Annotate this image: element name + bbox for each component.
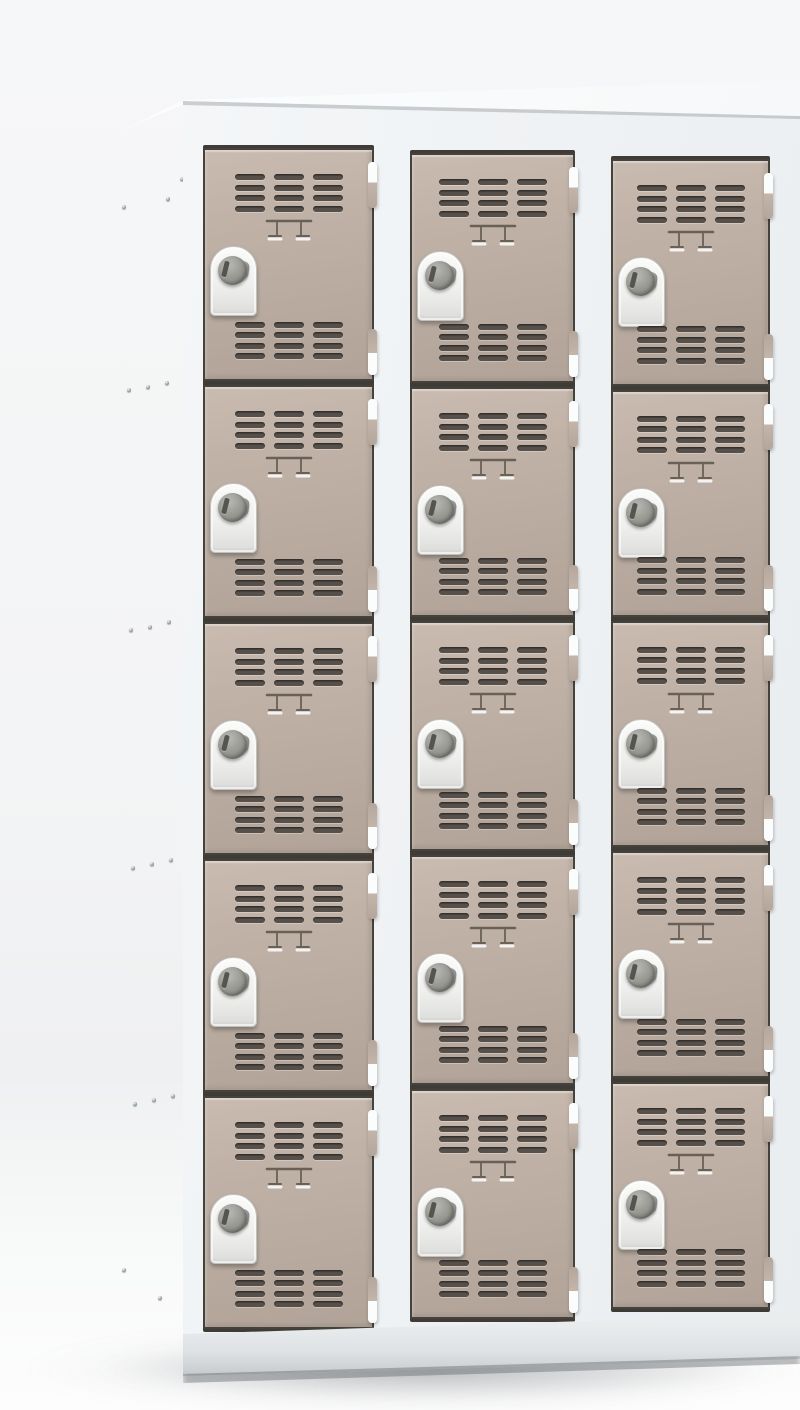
vent-slat [676,1040,706,1046]
vent-slat [439,1136,469,1142]
vent-slat [235,590,265,596]
vent-slat [715,877,745,883]
vent-slat [637,1040,667,1046]
vent-slat [637,337,667,343]
vent-slat [637,1050,667,1056]
vent-slat-group [637,185,667,223]
vent-slat [439,413,469,419]
vent-slat [274,1143,304,1149]
vent-slat [439,813,469,819]
vent-slat [676,1019,706,1025]
vent-slat [313,827,343,833]
vent-slat [517,1136,547,1142]
door-bottom-vent [439,558,547,596]
vent-slat [517,1270,547,1276]
vent-slat [478,334,508,340]
vent-slat [715,1249,745,1255]
vent-slat-group [715,1019,745,1057]
vent-slat [313,1133,343,1139]
door-top-vent [637,185,745,223]
vent-slat [274,343,304,349]
vent-slat [313,659,343,665]
vent-slat [235,1043,265,1049]
vent-slat-group [637,647,667,685]
vent-slat [478,1036,508,1042]
vent-slat-group [235,322,265,360]
door-top-vent [637,1108,745,1146]
vent-slat [637,1019,667,1025]
vent-slat [637,678,667,684]
door-lock-escutcheon [618,719,665,789]
vent-slat [478,802,508,808]
door-hinge-top [368,399,377,445]
locker-door-r2-c2 [410,387,575,617]
door-top-vent [637,416,745,454]
vent-slat [478,679,508,685]
vent-slat [715,578,745,584]
vent-slat-group [313,1033,343,1071]
vent-slat [715,1019,745,1025]
door-hinge-bottom [569,1267,578,1313]
locker-door-r5-c2 [410,1089,575,1319]
vent-slat-group [517,647,547,685]
vent-slat [235,659,265,665]
vent-slat-group [517,1115,547,1153]
door-lock-escutcheon [417,719,464,789]
vent-slat-group [517,179,547,217]
locker-door-r1-c1 [203,148,374,381]
door-top-vent [439,1115,547,1153]
vent-slat [478,1126,508,1132]
vent-slat [715,898,745,904]
vent-slat [517,434,547,440]
vent-slat [637,568,667,574]
vent-slat [478,190,508,196]
rivet [166,197,170,201]
vent-slat [235,185,265,191]
vent-slat-group [517,1260,547,1298]
vent-slat [274,896,304,902]
vent-slat [439,902,469,908]
vent-slat-group [478,413,508,451]
vent-slat [517,679,547,685]
rivet [122,1268,126,1272]
vent-slat [517,355,547,361]
vent-slat [637,1260,667,1266]
vent-slat [517,1047,547,1053]
vent-slat [517,579,547,585]
vent-slat-group [439,881,469,919]
vent-slat [274,353,304,359]
vent-slat [715,437,745,443]
vent-slat [478,424,508,430]
door-bottom-vent [235,1270,343,1308]
door-hinge-bottom [368,1277,377,1323]
vent-slat [478,1057,508,1063]
vent-slat-group [715,1249,745,1287]
vent-slat [715,1108,745,1114]
door-hinge-bottom [764,565,773,611]
door-lock-escutcheon [618,257,665,327]
vent-slat [313,669,343,675]
door-label-holder-cutout [264,927,314,955]
door-hinge-top [368,1110,377,1156]
door-hinge-top [368,873,377,919]
vent-slat [235,443,265,449]
vent-slat [478,1136,508,1142]
vent-slat-group [439,647,469,685]
rivet [152,1098,156,1102]
vent-slat [517,211,547,217]
vent-slat [676,1108,706,1114]
vent-slat [274,559,304,565]
vent-slat [676,568,706,574]
vent-slat [715,678,745,684]
vent-slat [478,1147,508,1153]
rivet [165,381,169,385]
rivet [127,388,131,392]
door-hinge-top [368,162,377,208]
vent-slat [274,206,304,212]
vent-slat-group [478,647,508,685]
door-hinge-bottom [569,799,578,845]
vent-slat-group [637,877,667,915]
vent-slat-group [676,877,706,915]
vent-slat [313,1280,343,1286]
vent-slat [517,913,547,919]
vent-slat-group [235,885,265,923]
vent-slat [517,823,547,829]
vent-slat [715,909,745,915]
vent-slat-group [274,322,304,360]
vent-slat [517,1291,547,1297]
vent-slat [676,788,706,794]
vent-slat [637,647,667,653]
vent-slat [313,1143,343,1149]
vent-slat [235,1270,265,1276]
vent-slat [274,1280,304,1286]
door-hinge-bottom [368,1040,377,1086]
vent-slat-group [676,416,706,454]
vent-slat [676,809,706,815]
vent-slat-group [517,1026,547,1064]
vent-slat [235,206,265,212]
vent-slat [637,206,667,212]
vent-slat-group [439,324,469,362]
vent-slat [478,1047,508,1053]
vent-slat [313,906,343,912]
vent-slat [274,569,304,575]
vent-slat-group [313,411,343,449]
vent-slat [235,343,265,349]
vent-slat [439,1036,469,1042]
vent-slat [235,432,265,438]
vent-slat [439,881,469,887]
vent-slat [235,1280,265,1286]
door-hinge-top [569,167,578,213]
vent-slat [439,1026,469,1032]
vent-slat [313,796,343,802]
door-lock-escutcheon [618,1180,665,1250]
door-hinge-top [764,173,773,219]
door-hinge-bottom [764,795,773,841]
vent-slat [517,1260,547,1266]
vent-slat [676,185,706,191]
vent-slat [478,200,508,206]
vent-slat [235,806,265,812]
locker-door-r5-c1 [203,1096,374,1329]
vent-slat-group [715,326,745,364]
vent-slat [676,589,706,595]
vent-slat [478,589,508,595]
vent-slat [637,1270,667,1276]
rivet [148,625,152,629]
vent-slat [313,648,343,654]
rivet [169,858,173,862]
vent-slat [478,324,508,330]
vent-slat [274,806,304,812]
vent-slat [439,579,469,585]
door-lock-escutcheon [210,957,257,1027]
door-top-vent [439,647,547,685]
door-lock-escutcheon [210,720,257,790]
vent-slat [313,817,343,823]
door-hinge-top [764,635,773,681]
door-bottom-vent [637,1249,745,1287]
vent-slat [274,648,304,654]
vent-slat [715,1050,745,1056]
vent-slat-group [235,174,265,212]
vent-slat-group [439,1260,469,1298]
vent-slat-group [517,792,547,830]
vent-slat [274,1054,304,1060]
vent-slat [439,658,469,664]
vent-slat [274,195,304,201]
vent-slat [274,185,304,191]
vent-slat-group [313,174,343,212]
vent-slat-group [274,559,304,597]
vent-slat [517,792,547,798]
vent-slat [637,217,667,223]
vent-slat [637,426,667,432]
vent-slat [478,568,508,574]
vent-slat [235,332,265,338]
vent-slat [439,1147,469,1153]
vent-slat [439,802,469,808]
vent-slat [715,1260,745,1266]
vent-slat [439,668,469,674]
vent-slat [313,1033,343,1039]
vent-slat [676,1029,706,1035]
vent-slat [235,1033,265,1039]
vent-slat [517,200,547,206]
vent-slat [439,355,469,361]
vent-slat [676,347,706,353]
vent-slat [478,792,508,798]
door-bottom-vent [235,1033,343,1071]
door-top-vent [637,647,745,685]
vent-slat [235,1154,265,1160]
vent-slat [313,1064,343,1070]
vent-slat [637,437,667,443]
vent-slat [478,579,508,585]
vent-slat [517,445,547,451]
vent-slat [715,416,745,422]
vent-slat [274,332,304,338]
vent-slat [439,568,469,574]
vent-slat [715,1270,745,1276]
vent-slat [637,898,667,904]
vent-slat [676,578,706,584]
vent-slat [637,809,667,815]
door-lock-escutcheon [210,1194,257,1264]
door-hinge-bottom [764,334,773,380]
vent-slat [478,902,508,908]
vent-slat [439,334,469,340]
locker-door-r4-c2 [410,855,575,1085]
vent-slat [517,558,547,564]
vent-slat [235,680,265,686]
vent-slat [313,411,343,417]
locker-door-r4-c1 [203,859,374,1092]
vent-slat [313,896,343,902]
vent-slat [313,1301,343,1307]
vent-slat [517,1126,547,1132]
vent-slat [235,559,265,565]
vent-slat [235,917,265,923]
vent-slat [235,796,265,802]
vent-slat-group [439,1115,469,1153]
door-label-holder-cutout [468,923,518,951]
vent-slat [517,1057,547,1063]
vent-slat-group [313,322,343,360]
locker-column-2 [410,150,575,1322]
vent-slat [676,437,706,443]
vent-slat [235,1301,265,1307]
vent-slat [478,558,508,564]
door-hinge-bottom [368,566,377,612]
vent-slat-group [637,1249,667,1287]
vent-slat [715,657,745,663]
vent-slat [715,196,745,202]
door-bottom-vent [637,326,745,364]
vent-slat-group [478,1115,508,1153]
vent-slat [715,1140,745,1146]
vent-slat [313,1291,343,1297]
vent-slat [439,558,469,564]
locker-door-r5-c3 [611,1082,770,1309]
vent-slat-group [313,796,343,834]
vent-slat [676,1260,706,1266]
vent-slat-group [439,1026,469,1064]
vent-slat [715,1029,745,1035]
vent-slat-group [715,1108,745,1146]
door-hinge-bottom [368,803,377,849]
door-bottom-vent [637,788,745,826]
vent-slat-group [517,558,547,596]
vent-slat [274,906,304,912]
door-hinge-top [368,636,377,682]
vent-slat [235,1291,265,1297]
vent-slat [235,195,265,201]
door-top-vent [439,179,547,217]
door-label-holder-cutout [468,1157,518,1185]
vent-slat [676,668,706,674]
door-label-holder-cutout [666,919,716,947]
vent-slat [637,1281,667,1287]
vent-slat [235,896,265,902]
vent-slat [274,885,304,891]
door-top-vent [637,877,745,915]
vent-slat [676,877,706,883]
vent-slat [235,411,265,417]
door-top-vent [235,885,343,923]
vent-slat [676,888,706,894]
vent-slat [313,1043,343,1049]
vent-slat-group [235,796,265,834]
vent-slat-group [478,558,508,596]
vent-slat [478,913,508,919]
door-hinge-bottom [764,1026,773,1072]
vent-slat [676,678,706,684]
rivet [131,866,135,870]
vent-slat-group [715,557,745,595]
vent-slat [676,898,706,904]
vent-slat [439,324,469,330]
door-bottom-vent [637,557,745,595]
vent-slat-group [676,1249,706,1287]
door-hinge-top [569,869,578,915]
vent-slat [676,557,706,563]
vent-slat-group [313,1270,343,1308]
vent-slat [676,416,706,422]
vent-slat-group [715,877,745,915]
vent-slat [517,1026,547,1032]
vent-slat [439,434,469,440]
vent-slat [313,590,343,596]
vent-slat [676,1129,706,1135]
vent-slat [676,337,706,343]
door-top-vent [235,648,343,686]
door-lock-escutcheon [417,251,464,321]
vent-slat-group [274,885,304,923]
vent-slat [637,557,667,563]
vent-slat [313,206,343,212]
vent-slat [715,1281,745,1287]
vent-slat [274,1154,304,1160]
vent-slat [517,424,547,430]
vent-slat [478,413,508,419]
vent-slat [676,196,706,202]
vent-slat [274,322,304,328]
vent-slat [439,445,469,451]
door-label-holder-cutout [264,453,314,481]
vent-slat [274,1043,304,1049]
vent-slat [715,206,745,212]
vent-slat [274,1033,304,1039]
door-top-vent [235,411,343,449]
vent-slat-group [637,326,667,364]
vent-slat [439,679,469,685]
vent-slat [478,345,508,351]
rivet [158,1296,162,1300]
vent-slat [478,658,508,664]
vent-slat [235,1064,265,1070]
vent-slat [715,1040,745,1046]
vent-slat [478,355,508,361]
vent-slat [517,1036,547,1042]
vent-slat [274,817,304,823]
